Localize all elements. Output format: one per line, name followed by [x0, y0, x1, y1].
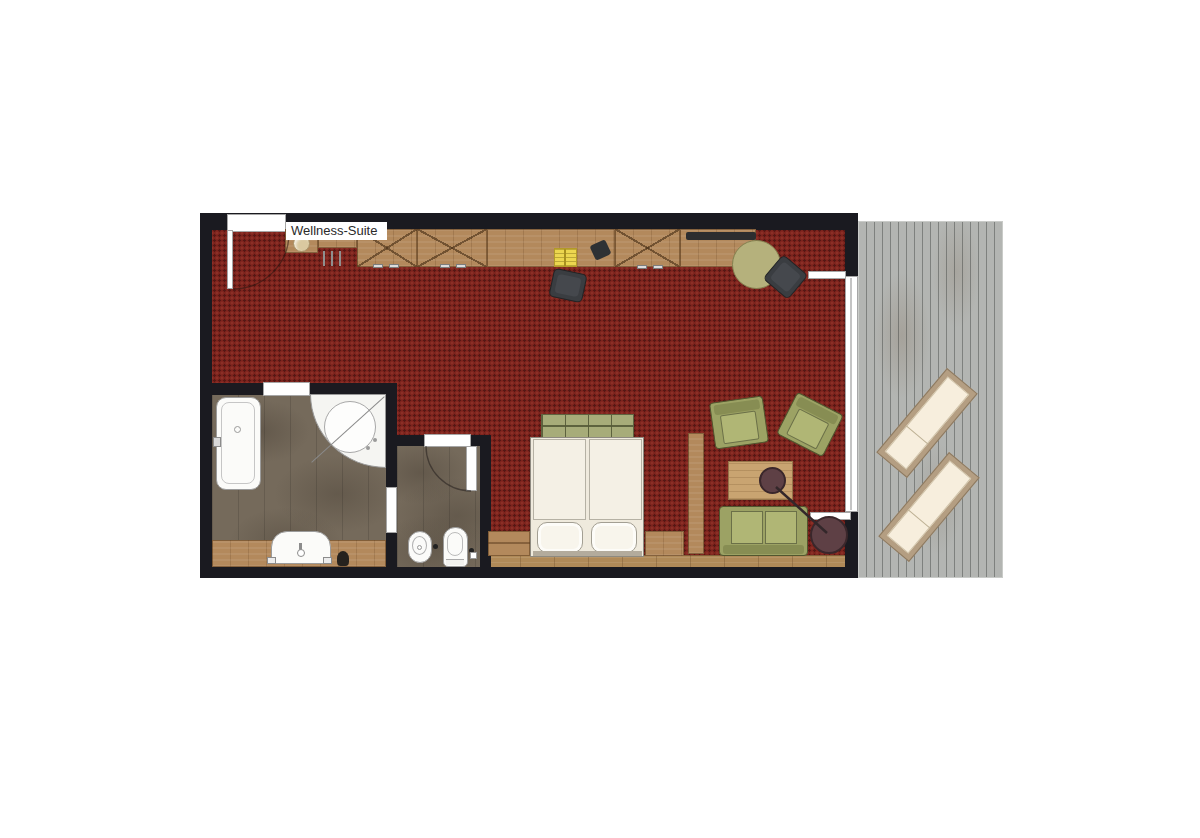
room-label-text: Wellness-Suite: [291, 223, 377, 238]
floor-plan: Wellness-Suite: [0, 0, 1200, 838]
room-label: Wellness-Suite: [286, 222, 387, 240]
annotation-lines: [0, 0, 1200, 838]
wc-door-swing-arc: [426, 446, 471, 491]
floor-plan-page: { "floorplan": { "title": "Wellness-Suit…: [0, 0, 1200, 838]
floor-lamp-arm: [776, 487, 827, 533]
entrance-door-swing-arc: [233, 233, 289, 289]
